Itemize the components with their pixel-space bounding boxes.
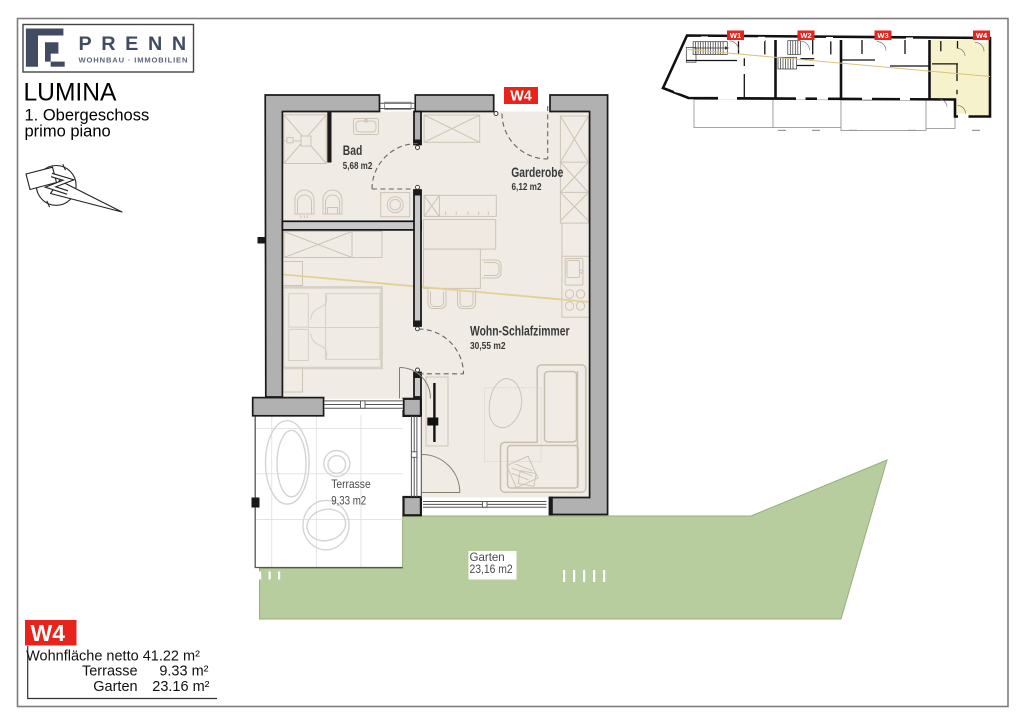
svg-text:W4: W4	[31, 620, 66, 646]
svg-text:W2: W2	[800, 31, 811, 40]
svg-text:Wohnfläche netto 41.22 m²: Wohnfläche netto 41.22 m²	[26, 648, 200, 664]
svg-text:W4: W4	[976, 31, 988, 40]
svg-text:Terrasse: Terrasse	[82, 663, 138, 679]
svg-text:6,12 m2: 6,12 m2	[512, 181, 542, 193]
svg-text:23.16 m²: 23.16 m²	[152, 679, 209, 695]
svg-text:Terrasse: Terrasse	[331, 477, 371, 491]
svg-text:Garderobe: Garderobe	[511, 165, 563, 180]
svg-text:Garten: Garten	[93, 679, 137, 695]
svg-text:LUMINA: LUMINA	[24, 80, 118, 107]
svg-text:W4: W4	[510, 89, 532, 105]
svg-text:1. Obergeschoss: 1. Obergeschoss	[25, 106, 150, 124]
svg-text:23,16 m2: 23,16 m2	[470, 562, 513, 576]
svg-text:30,55 m2: 30,55 m2	[470, 340, 506, 352]
svg-text:Wohn-Schlafzimmer: Wohn-Schlafzimmer	[470, 324, 570, 339]
svg-text:W1: W1	[730, 31, 741, 40]
svg-text:WOHNBAU · IMMOBILIEN: WOHNBAU · IMMOBILIEN	[79, 56, 189, 65]
svg-text:primo piano: primo piano	[25, 123, 111, 141]
svg-text:9,33 m2: 9,33 m2	[331, 493, 366, 507]
svg-text:5,68 m2: 5,68 m2	[343, 160, 373, 172]
svg-text:W3: W3	[877, 31, 888, 40]
svg-text:Bad: Bad	[343, 143, 363, 158]
svg-text:9.33 m²: 9.33 m²	[159, 663, 208, 679]
svg-text:PRENN: PRENN	[79, 33, 196, 55]
